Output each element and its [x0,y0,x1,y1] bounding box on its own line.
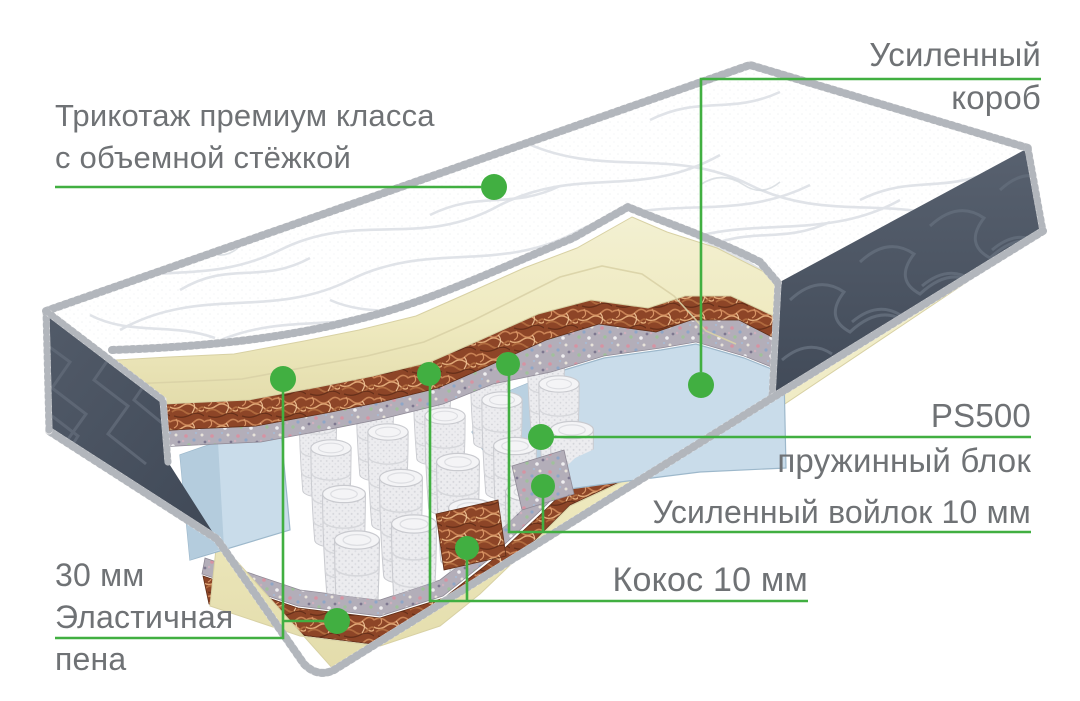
callout-dot-spring [528,424,554,450]
callout-dot-coco-top [417,362,441,386]
label-foam: 30 мм Эластичная пена [55,554,233,680]
callout-dot-fabric [481,174,507,200]
label-coco: Кокос 10 мм [612,559,808,601]
callout-dot-foam-top [270,366,296,392]
label-reinforced-box: Усиленный короб [869,33,1041,119]
callout-dot-felt-top [496,352,520,376]
label-spring-block: пружинный блок [777,440,1031,482]
mattress-cutaway-diagram: Трикотаж премиум класса с объемной стёжк… [0,0,1080,701]
label-spring-model: PS500 [931,395,1031,437]
callout-dot-foam-bottom [324,608,350,634]
label-felt: Усиленный войлок 10 мм [652,491,1031,533]
callout-dot-box [688,372,714,398]
label-fabric: Трикотаж премиум класса с объемной стёжк… [55,95,435,179]
callout-dot-felt-bottom [531,474,555,498]
callout-dot-coco-bottom [455,536,479,560]
